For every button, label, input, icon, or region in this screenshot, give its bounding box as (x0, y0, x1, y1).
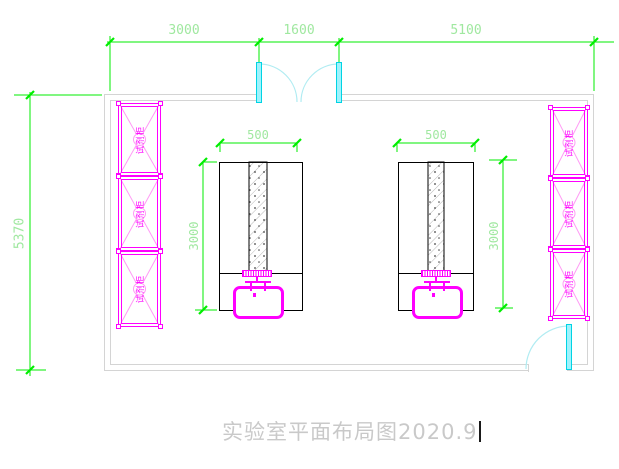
dim-right-bench-depth[interactable]: 3000 (487, 206, 501, 266)
reagent-cabinet-left-3[interactable]: 试剂柜 (118, 251, 161, 327)
cabinet-corner-post (116, 324, 121, 329)
cabinet-label: 试剂柜 (563, 199, 575, 228)
cabinet-corner-post (548, 105, 553, 110)
cabinet-corner-post (548, 176, 553, 181)
double-door-left-leaf[interactable] (256, 62, 262, 103)
single-door-leaf[interactable] (566, 324, 572, 370)
dimension-ticks (26, 38, 598, 374)
left-sink-drain-grate (242, 270, 272, 277)
cabinet-corner-post (585, 247, 590, 252)
reagent-cabinet-right-3[interactable]: 试剂柜 (550, 249, 588, 319)
dim-left-bench-depth[interactable]: 3000 (187, 206, 201, 266)
cabinet-corner-post (548, 247, 553, 252)
reagent-cabinet-left-1[interactable]: 试剂柜 (118, 103, 161, 176)
cabinet-corner-post (116, 101, 121, 106)
right-sink-spout (429, 283, 431, 291)
cabinet-corner-post (158, 174, 163, 179)
right-sink-faucet-bar (424, 281, 450, 283)
dim-top-right[interactable]: 5100 (436, 23, 496, 38)
drawing-title[interactable]: 实验室平面布局图2020.9 (222, 416, 481, 446)
cabinet-corner-post (585, 316, 590, 321)
cabinet-label: 试剂柜 (134, 275, 146, 304)
reagent-cabinet-right-1[interactable]: 试剂柜 (550, 107, 588, 178)
right-sink-drop (432, 293, 435, 297)
cabinet-corner-post (158, 101, 163, 106)
dimension-lines (14, 36, 614, 376)
dim-left-bench-width[interactable]: 500 (238, 128, 278, 142)
drawing-title-text: 实验室平面布局图2020.9 (222, 416, 477, 446)
right-sink-spout (443, 283, 445, 291)
linework-layer (0, 0, 619, 469)
reagent-cabinet-left-2[interactable]: 试剂柜 (118, 176, 161, 251)
cabinet-label: 试剂柜 (134, 125, 146, 154)
left-sink-spout (250, 283, 252, 291)
reagent-cabinet-right-2[interactable]: 试剂柜 (550, 178, 588, 249)
left-sink-drop (253, 293, 256, 297)
right-sink-drain-grate (421, 270, 451, 277)
dim-left-height[interactable]: 5370 (13, 204, 28, 264)
cabinet-label: 试剂柜 (563, 270, 575, 299)
left-sink-spout (264, 283, 266, 291)
dim-top-left[interactable]: 3000 (154, 23, 214, 38)
cabinet-corner-post (158, 324, 163, 329)
double-door-right-leaf[interactable] (336, 62, 342, 103)
text-cursor (479, 421, 481, 442)
cabinet-corner-post (585, 105, 590, 110)
left-sink-basin[interactable] (233, 286, 284, 319)
cabinet-corner-post (548, 316, 553, 321)
cabinet-corner-post (585, 176, 590, 181)
dim-top-middle[interactable]: 1600 (269, 23, 329, 38)
drawing-canvas[interactable]: 试剂柜 试剂柜 试剂柜 试剂柜 试剂柜 试剂柜 (0, 0, 619, 469)
right-sink-basin[interactable] (412, 286, 463, 319)
left-sink-faucet-bar (245, 281, 271, 283)
cabinet-corner-post (116, 249, 121, 254)
cabinet-corner-post (158, 249, 163, 254)
cabinet-label: 试剂柜 (563, 128, 575, 157)
cabinet-label: 试剂柜 (134, 199, 146, 228)
cabinet-corner-post (116, 174, 121, 179)
dim-right-bench-width[interactable]: 500 (416, 128, 456, 142)
